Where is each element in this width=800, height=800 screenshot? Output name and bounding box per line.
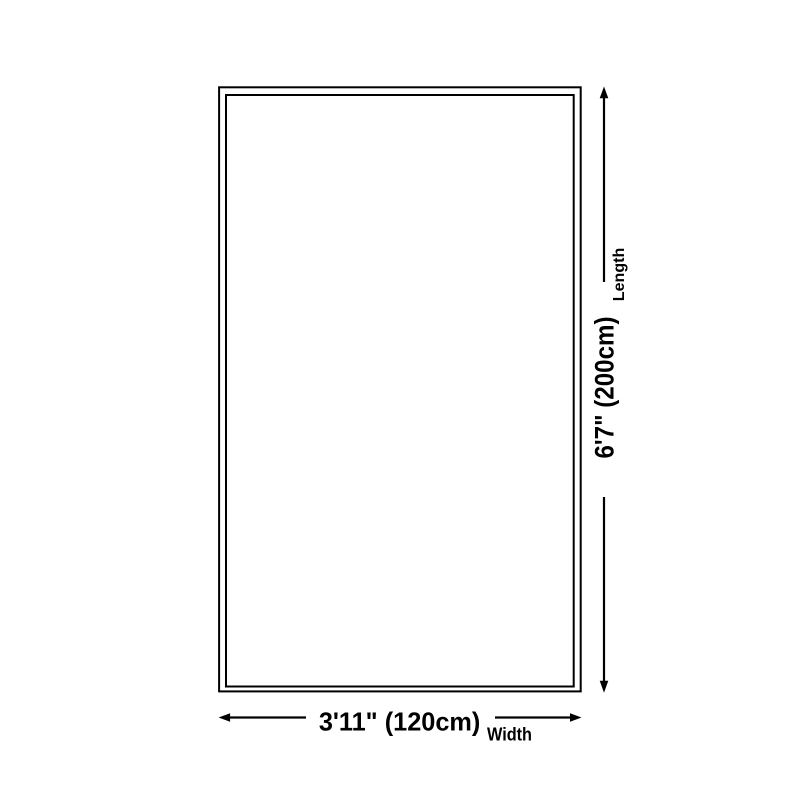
svg-text:Width: Width — [487, 725, 532, 745]
svg-text:Length: Length — [611, 248, 628, 302]
svg-text:3'11" (120cm): 3'11" (120cm) — [319, 707, 481, 737]
svg-text:6'7" (200cm): 6'7" (200cm) — [589, 317, 619, 459]
